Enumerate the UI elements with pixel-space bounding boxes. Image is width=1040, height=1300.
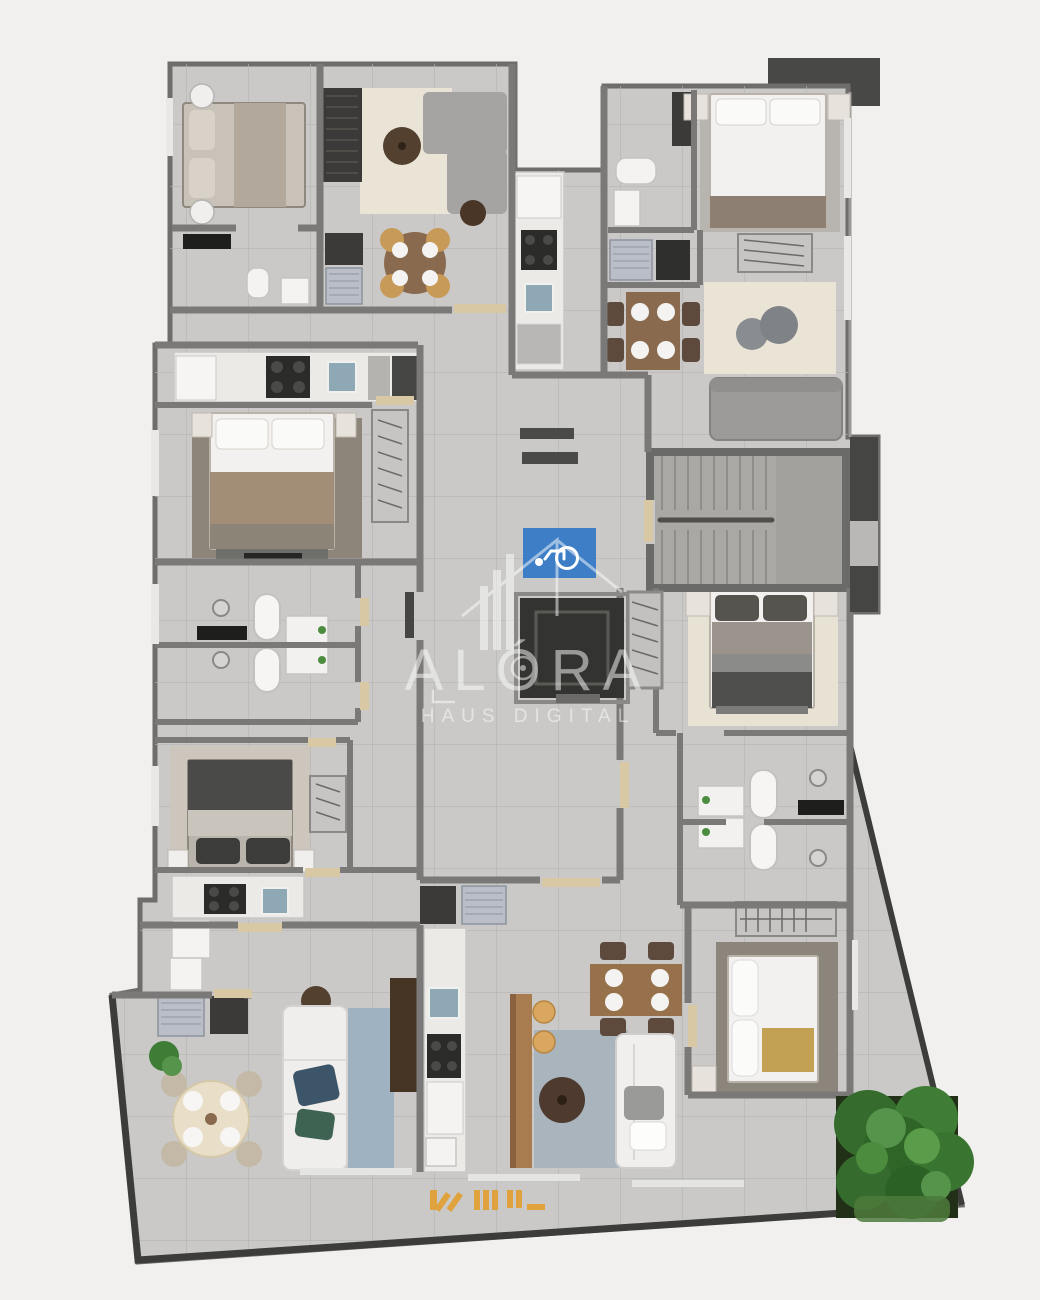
sideboard-l [390, 978, 418, 1092]
bed-k-pillow [732, 1020, 758, 1076]
bed-a-pillow [189, 158, 215, 198]
kitchen-sink-a [525, 284, 553, 312]
bar-stool [533, 1031, 555, 1053]
vanity-plant [702, 796, 710, 804]
bar-stool [533, 1001, 555, 1023]
dining-chair-j [600, 942, 626, 960]
bed-i-pillow [715, 595, 759, 621]
toilet-a [247, 268, 269, 298]
wardrobe-a [322, 88, 362, 182]
window [151, 584, 159, 644]
plate [220, 1091, 240, 1111]
appliance-g2 [170, 958, 202, 990]
door-leaf [360, 682, 369, 710]
kitchen-cabinet-dark-g [392, 356, 418, 400]
plate [392, 270, 408, 286]
closet-g [372, 410, 408, 522]
floor-marker [516, 1190, 522, 1208]
nightstand-i [686, 590, 710, 616]
dining-chair-j [648, 942, 674, 960]
kitchen-cabinet-g [368, 356, 390, 400]
floor-marker [474, 1190, 480, 1210]
bed-g2-pillow [196, 838, 240, 864]
window [844, 118, 851, 198]
floor-marker [507, 1190, 513, 1208]
black-counter-i [798, 800, 844, 815]
column-dark [850, 566, 878, 612]
kitchen-sink2-j [426, 1138, 456, 1166]
cabinet-dark-j [420, 886, 456, 924]
door-leaf [542, 878, 600, 887]
floor-lamp [810, 770, 826, 786]
vanity-plant [702, 828, 710, 836]
burner [543, 235, 553, 245]
bed-c-pillow [770, 99, 820, 125]
bar-counter-j-edge [510, 994, 516, 1168]
hall-door-dark [405, 592, 414, 638]
plate [183, 1091, 203, 1111]
watermark-subtitle: HAUS DIGITAL [421, 706, 636, 727]
side-table-a [460, 200, 486, 226]
bathtub-i [750, 824, 777, 870]
bed-a-blanket [234, 103, 286, 207]
burner [229, 901, 239, 911]
stairs-landing [776, 454, 844, 586]
tv-console-g [244, 553, 302, 559]
burner [293, 381, 305, 393]
bed-g-sheet [210, 524, 334, 549]
hall-console [522, 452, 578, 464]
door-leaf [360, 598, 369, 626]
floor-lamp [810, 850, 826, 866]
column-dark [850, 437, 878, 521]
door-leaf [214, 989, 252, 998]
door-leaf [454, 304, 506, 313]
bathtub-g [254, 648, 280, 692]
bed-i-fringe [716, 706, 808, 714]
dining-table-c [626, 292, 680, 370]
sofa-c-back [710, 378, 842, 392]
kitchen-sink-g2 [262, 888, 288, 914]
tree-foliage-light [856, 1142, 888, 1174]
burner [271, 381, 283, 393]
plate [183, 1127, 203, 1147]
black-counter-g [197, 626, 247, 640]
bed-g2-blanket [188, 760, 292, 812]
cabinet-dark-l [210, 996, 248, 1034]
nightstand-k [692, 1066, 716, 1092]
sink-c [614, 190, 640, 226]
door-leaf [620, 762, 629, 808]
burner [431, 1041, 441, 1051]
cooktop-g [266, 356, 310, 398]
kitchen-cabinet-a [517, 176, 561, 218]
glass-door [632, 1180, 744, 1187]
terrace-plant-highlight [162, 1056, 182, 1076]
burner [525, 255, 535, 265]
nightstand-a [190, 200, 214, 224]
washer-c [610, 240, 652, 280]
door-leaf [688, 1005, 697, 1047]
bed-c-fold [710, 196, 826, 228]
laundry-cabinet-a [325, 233, 363, 265]
rug-chaise-l [348, 1008, 394, 1170]
burner [271, 361, 283, 373]
cooktop-j [427, 1034, 461, 1078]
vanity-plant [318, 656, 326, 664]
kitchen-sink-g [328, 362, 356, 392]
floor-lamp [213, 600, 229, 616]
window [166, 98, 173, 156]
bed-a-pillow [189, 110, 215, 150]
bed-i-blanket [712, 672, 812, 708]
bed-g-pillow [272, 419, 324, 449]
bathtub-i [750, 770, 777, 818]
cabinet-dark-c [656, 240, 690, 280]
glass-door [300, 1168, 412, 1175]
floorplan-canvas: ALÓRA HAUS DIGITAL [0, 0, 1040, 1300]
kitchen-cabinet-g [176, 356, 216, 400]
plate [422, 270, 438, 286]
plate [220, 1127, 240, 1147]
plate [631, 341, 649, 359]
bed-g2-pillow [246, 838, 290, 864]
bed-i-floral [712, 622, 812, 656]
dining-chair-c [682, 338, 700, 362]
plate [605, 993, 623, 1011]
door-leaf [238, 923, 282, 932]
hall-console [520, 428, 574, 439]
sofa-pillow [630, 1122, 666, 1150]
burner [447, 1061, 457, 1071]
bed-c-pillow [716, 99, 766, 125]
door-leaf [376, 396, 414, 405]
burner [209, 901, 219, 911]
bathtub-g [254, 594, 280, 640]
watermark-title: ALÓRA [405, 638, 652, 703]
door-leaf [644, 500, 653, 542]
nightstand-c [828, 94, 850, 120]
nightstand-i [814, 590, 838, 616]
burner [229, 887, 239, 897]
washer-l [158, 996, 204, 1036]
bed-g-blanket [210, 472, 334, 528]
burner [209, 887, 219, 897]
dining-chair-c [606, 302, 624, 326]
plate [605, 969, 623, 987]
burner [447, 1041, 457, 1051]
floor-lamp [213, 652, 229, 668]
plate [657, 341, 675, 359]
tree-foliage-light [904, 1128, 940, 1164]
burner [293, 361, 305, 373]
bed-i-sheet [712, 654, 812, 674]
stairs [644, 452, 846, 588]
sofa-a [423, 92, 507, 154]
dining-chair-c [606, 338, 624, 362]
vanity-plant [318, 626, 326, 634]
column-gap [850, 521, 878, 566]
coffee-table-j-dot [557, 1095, 567, 1105]
floor-marker [527, 1204, 545, 1210]
kitchen-cabinet-j [427, 1082, 463, 1134]
burner [431, 1061, 441, 1071]
dining-table-j [590, 964, 682, 1016]
plate [657, 303, 675, 321]
groundcover [854, 1196, 950, 1222]
burner [525, 235, 535, 245]
dining-chair-c [682, 302, 700, 326]
kitchen-cabinet-a [517, 324, 561, 364]
window [151, 766, 159, 826]
coffee-table-a-dot [398, 142, 406, 150]
burner [543, 255, 553, 265]
sofa-pillow-green [294, 1108, 336, 1141]
kitchen-sink-j [429, 988, 459, 1018]
door-leaf [305, 868, 340, 877]
pouf-c [760, 306, 798, 344]
floor-marker [492, 1190, 498, 1210]
nightstand-a [190, 84, 214, 108]
cooktop-g2 [204, 884, 246, 914]
nightstand-g [336, 413, 356, 437]
closet-g2 [310, 776, 346, 832]
window [852, 940, 858, 1010]
floorplan-svg: ALÓRA HAUS DIGITAL [0, 0, 1040, 1300]
bed-g2-sheet [188, 810, 292, 836]
bath-counter-a [183, 234, 231, 249]
sofa-pillow [624, 1086, 664, 1120]
cooktop-a [521, 230, 557, 270]
bed-g-pillow [216, 419, 268, 449]
plate [392, 242, 408, 258]
structure-columns [850, 437, 878, 612]
sink-a [281, 278, 309, 304]
toilet-c [616, 158, 656, 184]
window [151, 430, 159, 496]
plate [651, 969, 669, 987]
terrace-table-center [205, 1113, 217, 1125]
glass-door [468, 1174, 580, 1181]
plate [651, 993, 669, 1011]
bed-k-pillow [732, 960, 758, 1016]
bed-i-pillow [763, 595, 807, 621]
door-leaf [308, 738, 336, 747]
floor-marker [483, 1190, 489, 1210]
bed-k-gold-throw [762, 1028, 814, 1072]
nightstand-g [192, 413, 212, 437]
plate [631, 303, 649, 321]
washer-j [462, 886, 506, 924]
window [844, 236, 851, 320]
plate [422, 242, 438, 258]
